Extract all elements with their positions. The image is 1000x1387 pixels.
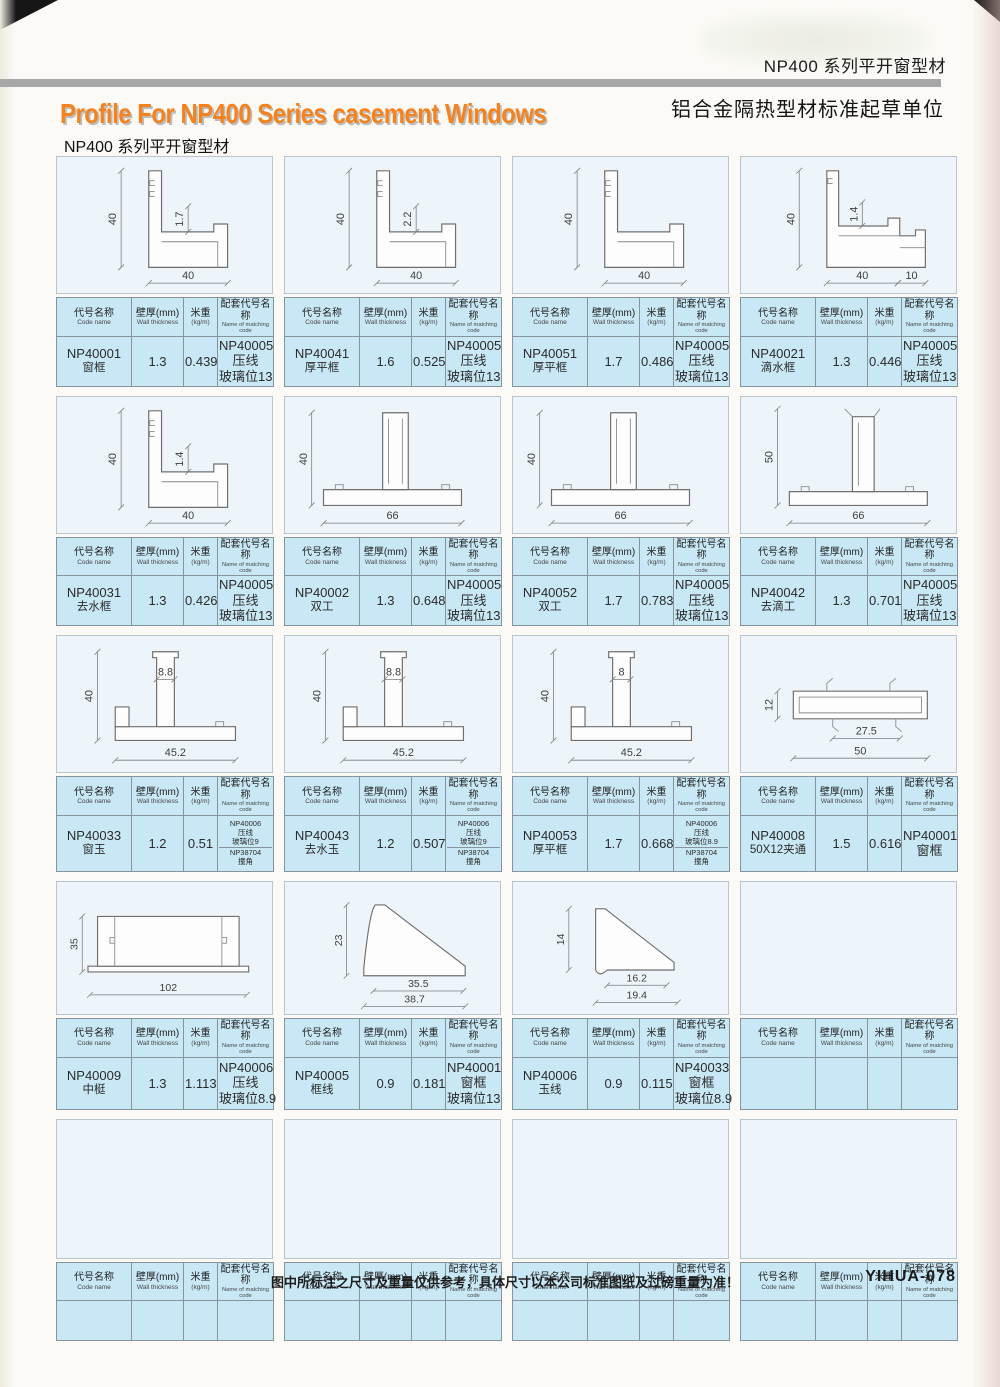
weight-cell: 0.701	[868, 576, 902, 626]
profile-drawing-empty	[740, 881, 957, 1015]
profile-cell: 1416.219.4 代号名称Code name 壁厚(mm)Wall thic…	[512, 881, 729, 1110]
col-header-weight: 米重(kg/m)	[640, 1018, 674, 1057]
svg-text:8.8: 8.8	[386, 666, 401, 678]
profile-drawing-empty	[284, 1119, 501, 1259]
col-header-wall-thickness: 壁厚(mm)Wall thickness	[360, 777, 412, 816]
col-header-code: 代号名称Code name	[285, 1018, 360, 1057]
profile-cross-section-NP40052: 4066	[513, 397, 728, 533]
weight-cell: 0.446	[868, 336, 902, 386]
col-header-code: 代号名称Code name	[57, 777, 132, 816]
grid-row: 40401.7 代号名称Code name 壁厚(mm)Wall thickne…	[56, 156, 961, 387]
matching-code-group: NP40005压线玻璃位13	[675, 338, 728, 385]
profile-spec-table: 代号名称Code name 壁厚(mm)Wall thickness 米重(kg…	[512, 297, 730, 387]
matching-code-cell: NP40005压线玻璃位13	[218, 336, 274, 386]
profile-spec-table: 代号名称Code name 壁厚(mm)Wall thickness 米重(kg…	[512, 1018, 730, 1110]
svg-text:40: 40	[638, 270, 650, 282]
table-header-row: 代号名称Code name 壁厚(mm)Wall thickness 米重(kg…	[741, 1018, 958, 1057]
col-header-weight: 米重(kg/m)	[868, 298, 902, 337]
code-cell: NP40053厚平框	[513, 815, 588, 871]
matching-code-group: NP40005压线玻璃位13	[903, 338, 956, 385]
matching-code-cell	[902, 1301, 958, 1341]
profile-cell: 40401.4 代号名称Code name 壁厚(mm)Wall thickne…	[56, 396, 273, 627]
profile-cross-section-NP40021: 401.44010	[741, 157, 956, 293]
profile-cell: 代号名称Code name 壁厚(mm)Wall thickness 米重(kg…	[740, 881, 957, 1110]
col-header-weight: 米重(kg/m)	[412, 537, 446, 576]
col-header-matching-code: 配套代号名称Name of matching code	[218, 777, 274, 816]
svg-text:14: 14	[555, 933, 567, 945]
table-data-row: NP40041厚平框 1.6 0.525 NP40005压线玻璃位13	[285, 336, 502, 386]
svg-text:40: 40	[335, 213, 347, 225]
page-title-en: Profile For NP400 Series casement Window…	[60, 98, 546, 130]
profile-cell: 408.845.2 代号名称Code name 壁厚(mm)Wall thick…	[284, 635, 501, 872]
table-data-row: NP40001窗框 1.3 0.439 NP40005压线玻璃位13	[57, 336, 274, 386]
matching-code-group: NP40005压线玻璃位13	[675, 577, 728, 624]
col-header-code: 代号名称Code name	[741, 777, 816, 816]
profile-spec-table: 代号名称Code name 壁厚(mm)Wall thickness 米重(kg…	[740, 537, 958, 627]
profile-drawing-NP40008: 1227.550	[740, 635, 957, 773]
col-header-wall-thickness: 壁厚(mm)Wall thickness	[360, 1018, 412, 1057]
weight-cell: 1.113	[184, 1057, 218, 1109]
wall-thickness-cell	[360, 1301, 412, 1341]
weight-cell	[640, 1301, 674, 1341]
svg-text:19.4: 19.4	[627, 990, 648, 1002]
wall-thickness-cell: 1.5	[816, 815, 868, 871]
svg-text:50: 50	[764, 451, 776, 463]
table-data-row: NP40002双工 1.3 0.648 NP40005压线玻璃位13	[285, 576, 502, 626]
col-header-code: 代号名称Code name	[741, 298, 816, 337]
wall-thickness-cell: 1.6	[360, 336, 412, 386]
col-header-code: 代号名称Code name	[285, 298, 360, 337]
svg-text:50: 50	[854, 745, 866, 757]
code-cell: NP40041厚平框	[285, 336, 360, 386]
matching-code-group: NP40005压线玻璃位13	[219, 577, 272, 624]
table-data-row: NP40006玉线 0.9 0.115 NP40033窗框玻璃位8.9	[513, 1057, 730, 1109]
svg-text:40: 40	[182, 510, 194, 522]
wall-thickness-cell: 1.3	[132, 576, 184, 626]
svg-text:40: 40	[526, 453, 538, 465]
svg-text:1.4: 1.4	[174, 451, 186, 466]
catalog-page: NP400 系列平开窗型材 铝合金隔热型材标准起草单位 Profile For …	[0, 0, 1000, 1387]
table-data-row: NP40005框线 0.9 0.181 NP40001窗框玻璃位13	[285, 1057, 502, 1109]
svg-text:45.2: 45.2	[165, 747, 186, 759]
matching-code-cell: NP40005压线玻璃位13	[674, 576, 730, 626]
col-header-weight: 米重(kg/m)	[640, 777, 674, 816]
matching-code-cell: NP40001窗框	[902, 815, 958, 871]
table-data-row	[741, 1057, 958, 1109]
col-header-weight: 米重(kg/m)	[868, 1018, 902, 1057]
profile-cross-section-NP40033: 408.845.2	[57, 636, 272, 772]
profile-cell: 5066 代号名称Code name 壁厚(mm)Wall thickness …	[740, 396, 957, 627]
col-header-weight: 米重(kg/m)	[640, 298, 674, 337]
table-header-row: 代号名称Code name 壁厚(mm)Wall thickness 米重(kg…	[285, 777, 502, 816]
col-header-weight: 米重(kg/m)	[640, 537, 674, 576]
col-header-code: 代号名称Code name	[285, 777, 360, 816]
profile-spec-table: 代号名称Code name 壁厚(mm)Wall thickness 米重(kg…	[56, 297, 274, 387]
profile-cell: 代号名称Code name 壁厚(mm)Wall thickness 米重(kg…	[284, 1119, 501, 1342]
col-header-code: 代号名称Code name	[57, 298, 132, 337]
matching-code-group: NP38704撞角	[219, 847, 272, 866]
profile-spec-table: 代号名称Code name 壁厚(mm)Wall thickness 米重(kg…	[284, 1018, 502, 1110]
profile-cell: 代号名称Code name 壁厚(mm)Wall thickness 米重(kg…	[512, 1119, 729, 1342]
col-header-weight: 米重(kg/m)	[868, 777, 902, 816]
table-header-row: 代号名称Code name 壁厚(mm)Wall thickness 米重(kg…	[285, 298, 502, 337]
profile-cell: 4040 代号名称Code name 壁厚(mm)Wall thickness …	[512, 156, 729, 387]
table-data-row: NP40043去水玉 1.2 0.507 NP40006压线玻璃位9NP3870…	[285, 815, 502, 871]
svg-text:10: 10	[906, 270, 918, 282]
col-header-wall-thickness: 壁厚(mm)Wall thickness	[816, 298, 868, 337]
wall-thickness-cell	[588, 1301, 640, 1341]
code-cell	[741, 1057, 816, 1109]
profile-drawing-NP40031: 40401.4	[56, 396, 273, 534]
col-header-matching-code: 配套代号名称Name of matching code	[218, 298, 274, 337]
svg-text:45.2: 45.2	[393, 747, 414, 759]
profile-spec-table: 代号名称Code name 壁厚(mm)Wall thickness 米重(kg…	[284, 776, 502, 872]
col-header-matching-code: 配套代号名称Name of matching code	[218, 1018, 274, 1057]
matching-code-cell: NP40033窗框玻璃位8.9	[674, 1057, 730, 1109]
table-header-row: 代号名称Code name 壁厚(mm)Wall thickness 米重(kg…	[285, 537, 502, 576]
weight-cell: 0.616	[868, 815, 902, 871]
wall-thickness-cell	[816, 1301, 868, 1341]
svg-text:45.2: 45.2	[621, 747, 642, 759]
code-cell: NP40031去水框	[57, 576, 132, 626]
matching-code-cell: NP40006压线玻璃位9NP38704撞角	[218, 815, 274, 871]
col-header-weight: 米重(kg/m)	[184, 1018, 218, 1057]
profile-cross-section-NP40053: 40845.2	[513, 636, 728, 772]
profile-drawing-NP40021: 401.44010	[740, 156, 957, 294]
weight-cell: 0.668	[640, 815, 674, 871]
col-header-wall-thickness: 壁厚(mm)Wall thickness	[816, 537, 868, 576]
profile-cross-section-NP40043: 408.845.2	[285, 636, 500, 772]
matching-code-group: NP40006压线玻璃位9	[447, 820, 500, 846]
col-header-matching-code: 配套代号名称Name of matching code	[446, 537, 502, 576]
profile-cell: 代号名称Code name 壁厚(mm)Wall thickness 米重(kg…	[56, 1119, 273, 1342]
profile-cross-section-NP40041: 40402.2	[285, 157, 500, 293]
table-data-row: NP40009中梃 1.3 1.113 NP40006压线玻璃位8.9	[57, 1057, 274, 1109]
table-header-row: 代号名称Code name 壁厚(mm)Wall thickness 米重(kg…	[513, 777, 730, 816]
wall-thickness-cell: 1.2	[132, 815, 184, 871]
matching-code-group: NP40033窗框玻璃位8.9	[675, 1060, 728, 1107]
profile-spec-table: 代号名称Code name 壁厚(mm)Wall thickness 米重(kg…	[512, 776, 730, 872]
col-header-matching-code: 配套代号名称Name of matching code	[674, 777, 730, 816]
wall-thickness-cell: 0.9	[588, 1057, 640, 1109]
profile-spec-table: 代号名称Code name 壁厚(mm)Wall thickness 米重(kg…	[512, 537, 730, 627]
col-header-matching-code: 配套代号名称Name of matching code	[902, 1018, 958, 1057]
profile-drawing-empty	[740, 1119, 957, 1259]
wall-thickness-cell: 1.7	[588, 815, 640, 871]
weight-cell: 0.783	[640, 576, 674, 626]
col-header-wall-thickness: 壁厚(mm)Wall thickness	[816, 1018, 868, 1057]
col-header-wall-thickness: 壁厚(mm)Wall thickness	[588, 777, 640, 816]
svg-text:40: 40	[785, 213, 797, 225]
weight-cell: 0.507	[412, 815, 446, 871]
code-cell: NP40005框线	[285, 1057, 360, 1109]
code-cell: NP40006玉线	[513, 1057, 588, 1109]
wall-thickness-cell: 1.3	[816, 576, 868, 626]
grid-row: 35102 代号名称Code name 壁厚(mm)Wall thickness…	[56, 881, 961, 1110]
col-header-weight: 米重(kg/m)	[184, 777, 218, 816]
table-header-row: 代号名称Code name 壁厚(mm)Wall thickness 米重(kg…	[513, 537, 730, 576]
col-header-wall-thickness: 壁厚(mm)Wall thickness	[132, 537, 184, 576]
weight-cell: 0.115	[640, 1057, 674, 1109]
code-cell	[741, 1301, 816, 1341]
profile-drawing-NP40006: 1416.219.4	[512, 881, 729, 1015]
profile-drawing-empty	[56, 1119, 273, 1259]
profile-spec-table: 代号名称Code name 壁厚(mm)Wall thickness 米重(kg…	[56, 537, 274, 627]
svg-text:16.2: 16.2	[627, 972, 648, 984]
profile-drawing-NP40005: 2335.538.7	[284, 881, 501, 1015]
matching-code-cell: NP40005压线玻璃位13	[446, 336, 502, 386]
table-header-row: 代号名称Code name 壁厚(mm)Wall thickness 米重(kg…	[741, 537, 958, 576]
profile-cross-section-NP40005: 2335.538.7	[285, 882, 500, 1014]
wall-thickness-cell	[816, 1057, 868, 1109]
matching-code-cell: NP40001窗框玻璃位13	[446, 1057, 502, 1109]
matching-code-cell	[674, 1301, 730, 1341]
table-data-row	[741, 1301, 958, 1341]
matching-code-group: NP40005压线玻璃位13	[219, 338, 272, 385]
col-header-weight: 米重(kg/m)	[412, 298, 446, 337]
weight-cell: 0.439	[184, 336, 218, 386]
svg-text:1.7: 1.7	[174, 212, 186, 227]
table-data-row: NP40042去滴工 1.3 0.701 NP40005压线玻璃位13	[741, 576, 958, 626]
col-header-wall-thickness: 壁厚(mm)Wall thickness	[132, 1018, 184, 1057]
table-header-row: 代号名称Code name 壁厚(mm)Wall thickness 米重(kg…	[57, 777, 274, 816]
col-header-wall-thickness: 壁厚(mm)Wall thickness	[132, 298, 184, 337]
col-header-wall-thickness: 壁厚(mm)Wall thickness	[816, 777, 868, 816]
profile-cell: 40401.7 代号名称Code name 壁厚(mm)Wall thickne…	[56, 156, 273, 387]
svg-text:40: 40	[540, 690, 552, 702]
col-header-weight: 米重(kg/m)	[184, 537, 218, 576]
col-header-weight: 米重(kg/m)	[412, 777, 446, 816]
code-cell: NP40001窗框	[57, 336, 132, 386]
matching-code-cell: NP40005压线玻璃位13	[902, 576, 958, 626]
col-header-code: 代号名称Code name	[285, 537, 360, 576]
scan-edge-left	[0, 0, 16, 1387]
matching-code-group: NP38704撞角	[447, 847, 500, 866]
matching-code-group: NP40006压线玻璃位8.9	[675, 820, 728, 846]
svg-text:12: 12	[764, 699, 776, 711]
svg-text:102: 102	[160, 982, 178, 994]
profile-drawing-NP40002: 4066	[284, 396, 501, 534]
code-cell: NP40051厚平框	[513, 336, 588, 386]
matching-code-group: NP40006压线玻璃位8.9	[219, 1060, 272, 1107]
grid-row: 40401.4 代号名称Code name 壁厚(mm)Wall thickne…	[56, 396, 961, 627]
profile-cross-section-NP40051: 4040	[513, 157, 728, 293]
weight-cell	[412, 1301, 446, 1341]
svg-text:40: 40	[298, 453, 310, 465]
code-cell	[513, 1301, 588, 1341]
table-header-row: 代号名称Code name 壁厚(mm)Wall thickness 米重(kg…	[741, 298, 958, 337]
col-header-matching-code: 配套代号名称Name of matching code	[446, 1018, 502, 1057]
code-cell: NP40052双工	[513, 576, 588, 626]
profile-grid: 40401.7 代号名称Code name 壁厚(mm)Wall thickne…	[56, 156, 961, 1341]
svg-text:40: 40	[410, 270, 422, 282]
profile-cell: 代号名称Code name 壁厚(mm)Wall thickness 米重(kg…	[740, 1119, 957, 1342]
table-data-row	[285, 1301, 502, 1341]
profile-spec-table: 代号名称Code name 壁厚(mm)Wall thickness 米重(kg…	[284, 297, 502, 387]
matching-code-cell: NP40005压线玻璃位13	[218, 576, 274, 626]
profile-cell: 2335.538.7 代号名称Code name 壁厚(mm)Wall thic…	[284, 881, 501, 1110]
col-header-code: 代号名称Code name	[513, 777, 588, 816]
wall-thickness-cell	[132, 1301, 184, 1341]
table-header-row: 代号名称Code name 壁厚(mm)Wall thickness 米重(kg…	[741, 777, 958, 816]
table-data-row: NP40033窗玉 1.2 0.51 NP40006压线玻璃位9NP38704撞…	[57, 815, 274, 871]
col-header-code: 代号名称Code name	[57, 537, 132, 576]
matching-code-group: NP40001窗框	[903, 828, 956, 859]
col-header-weight: 米重(kg/m)	[184, 298, 218, 337]
col-header-wall-thickness: 壁厚(mm)Wall thickness	[588, 537, 640, 576]
col-header-matching-code: 配套代号名称Name of matching code	[674, 298, 730, 337]
table-data-row	[513, 1301, 730, 1341]
profile-cross-section-NP40009: 35102	[57, 882, 272, 1014]
matching-code-group: NP38704撞角	[675, 847, 728, 866]
matching-code-cell: NP40006压线玻璃位8.9NP38704撞角	[674, 815, 730, 871]
profile-cell: 40402.2 代号名称Code name 壁厚(mm)Wall thickne…	[284, 156, 501, 387]
wall-thickness-cell: 1.7	[588, 576, 640, 626]
weight-cell: 0.648	[412, 576, 446, 626]
col-header-code: 代号名称Code name	[741, 1018, 816, 1057]
svg-text:35: 35	[68, 938, 80, 950]
profile-drawing-NP40042: 5066	[740, 396, 957, 534]
table-data-row	[57, 1301, 274, 1341]
svg-text:2.2: 2.2	[402, 212, 414, 227]
grid-row: 代号名称Code name 壁厚(mm)Wall thickness 米重(kg…	[56, 1119, 961, 1342]
svg-text:8: 8	[618, 666, 624, 678]
weight-cell: 0.486	[640, 336, 674, 386]
matching-code-group: NP40001窗框玻璃位13	[447, 1060, 500, 1107]
series-header-label: NP400 系列平开窗型材	[764, 52, 946, 77]
matching-code-group: NP40005压线玻璃位13	[903, 577, 956, 624]
table-header-row: 代号名称Code name 壁厚(mm)Wall thickness 米重(kg…	[513, 1018, 730, 1057]
col-header-code: 代号名称Code name	[741, 537, 816, 576]
svg-text:40: 40	[563, 213, 575, 225]
col-header-wall-thickness: 壁厚(mm)Wall thickness	[360, 298, 412, 337]
col-header-wall-thickness: 壁厚(mm)Wall thickness	[132, 777, 184, 816]
profile-drawing-NP40041: 40402.2	[284, 156, 501, 294]
wall-thickness-cell: 1.2	[360, 815, 412, 871]
wall-thickness-cell: 1.3	[132, 1057, 184, 1109]
grid-row: 408.845.2 代号名称Code name 壁厚(mm)Wall thick…	[56, 635, 961, 872]
table-data-row: NP40053厚平框 1.7 0.668 NP40006压线玻璃位8.9NP38…	[513, 815, 730, 871]
wall-thickness-cell: 0.9	[360, 1057, 412, 1109]
profile-cell: 4066 代号名称Code name 壁厚(mm)Wall thickness …	[512, 396, 729, 627]
matching-code-cell: NP40006压线玻璃位8.9	[218, 1057, 274, 1109]
col-header-weight: 米重(kg/m)	[868, 537, 902, 576]
code-cell: NP40009中梃	[57, 1057, 132, 1109]
table-header-row: 代号名称Code name 壁厚(mm)Wall thickness 米重(kg…	[513, 298, 730, 337]
wall-thickness-cell: 1.3	[816, 336, 868, 386]
svg-text:35.5: 35.5	[408, 978, 429, 990]
col-header-matching-code: 配套代号名称Name of matching code	[902, 537, 958, 576]
svg-text:40: 40	[182, 270, 194, 282]
matching-code-cell	[218, 1301, 274, 1341]
col-header-wall-thickness: 壁厚(mm)Wall thickness	[588, 1018, 640, 1057]
org-header-label: 铝合金隔热型材标准起草单位	[671, 93, 944, 122]
weight-cell	[868, 1301, 902, 1341]
matching-code-cell: NP40005压线玻璃位13	[446, 576, 502, 626]
code-cell: NP40033窗玉	[57, 815, 132, 871]
profile-cross-section-NP40006: 1416.219.4	[513, 882, 728, 1014]
page-code: YIHUA-078	[865, 1268, 956, 1286]
header-divider-bar	[0, 79, 941, 87]
svg-text:1.4: 1.4	[848, 207, 860, 222]
weight-cell: 0.525	[412, 336, 446, 386]
scan-edge-right	[972, 0, 1000, 1387]
page-title-cn: NP400 系列平开窗型材	[64, 133, 229, 157]
matching-code-cell	[902, 1057, 958, 1109]
table-header-row: 代号名称Code name 壁厚(mm)Wall thickness 米重(kg…	[57, 298, 274, 337]
matching-code-group: NP40005压线玻璃位13	[447, 577, 500, 624]
profile-cell: 1227.550 代号名称Code name 壁厚(mm)Wall thickn…	[740, 635, 957, 872]
svg-text:40: 40	[856, 270, 868, 282]
profile-cell: 35102 代号名称Code name 壁厚(mm)Wall thickness…	[56, 881, 273, 1110]
profile-spec-table: 代号名称Code name 壁厚(mm)Wall thickness 米重(kg…	[284, 537, 502, 627]
table-header-row: 代号名称Code name 壁厚(mm)Wall thickness 米重(kg…	[57, 537, 274, 576]
profile-cell: 4066 代号名称Code name 壁厚(mm)Wall thickness …	[284, 396, 501, 627]
svg-text:40: 40	[107, 453, 119, 465]
table-data-row: NP40051厚平框 1.7 0.486 NP40005压线玻璃位13	[513, 336, 730, 386]
svg-text:66: 66	[614, 510, 626, 522]
profile-spec-table: 代号名称Code name 壁厚(mm)Wall thickness 米重(kg…	[740, 1018, 958, 1110]
col-header-code: 代号名称Code name	[513, 537, 588, 576]
profile-cross-section-NP40002: 4066	[285, 397, 500, 533]
table-header-row: 代号名称Code name 壁厚(mm)Wall thickness 米重(kg…	[285, 1018, 502, 1057]
matching-code-cell: NP40006压线玻璃位9NP38704撞角	[446, 815, 502, 871]
svg-text:38.7: 38.7	[404, 993, 425, 1005]
matching-code-cell	[446, 1301, 502, 1341]
col-header-code: 代号名称Code name	[513, 298, 588, 337]
matching-code-group: NP40006压线玻璃位9	[219, 820, 272, 846]
col-header-matching-code: 配套代号名称Name of matching code	[674, 1018, 730, 1057]
profile-spec-table: 代号名称Code name 壁厚(mm)Wall thickness 米重(kg…	[740, 297, 958, 387]
svg-text:40: 40	[84, 690, 96, 702]
svg-text:27.5: 27.5	[856, 726, 877, 738]
svg-text:66: 66	[386, 510, 398, 522]
wall-thickness-cell: 1.3	[360, 576, 412, 626]
profile-spec-table: 代号名称Code name 壁厚(mm)Wall thickness 米重(kg…	[740, 776, 958, 872]
col-header-wall-thickness: 壁厚(mm)Wall thickness	[360, 537, 412, 576]
profile-cell: 408.845.2 代号名称Code name 壁厚(mm)Wall thick…	[56, 635, 273, 872]
weight-cell: 0.426	[184, 576, 218, 626]
profile-cell: 40845.2 代号名称Code name 壁厚(mm)Wall thickne…	[512, 635, 729, 872]
profile-cross-section-NP40008: 1227.550	[741, 636, 956, 772]
profile-spec-table: 代号名称Code name 壁厚(mm)Wall thickness 米重(kg…	[56, 776, 274, 872]
code-cell	[285, 1301, 360, 1341]
profile-cell: 401.44010 代号名称Code name 壁厚(mm)Wall thick…	[740, 156, 957, 387]
svg-text:23: 23	[333, 934, 345, 946]
wall-thickness-cell: 1.7	[588, 336, 640, 386]
col-header-code: 代号名称Code name	[57, 1018, 132, 1057]
code-cell: NP40021滴水框	[741, 336, 816, 386]
profile-drawing-NP40001: 40401.7	[56, 156, 273, 294]
col-header-matching-code: 配套代号名称Name of matching code	[902, 777, 958, 816]
profile-spec-table: 代号名称Code name 壁厚(mm)Wall thickness 米重(kg…	[56, 1018, 274, 1110]
svg-text:40: 40	[107, 213, 119, 225]
col-header-matching-code: 配套代号名称Name of matching code	[674, 537, 730, 576]
col-header-code: 代号名称Code name	[513, 1018, 588, 1057]
matching-code-cell: NP40005压线玻璃位13	[902, 336, 958, 386]
table-data-row: NP40021滴水框 1.3 0.446 NP40005压线玻璃位13	[741, 336, 958, 386]
matching-code-cell: NP40005压线玻璃位13	[674, 336, 730, 386]
table-data-row: NP40031去水框 1.3 0.426 NP40005压线玻璃位13	[57, 576, 274, 626]
col-header-wall-thickness: 壁厚(mm)Wall thickness	[588, 298, 640, 337]
weight-cell: 0.51	[184, 815, 218, 871]
profile-cross-section-NP40031: 40401.4	[57, 397, 272, 533]
weight-cell	[184, 1301, 218, 1341]
table-data-row: NP4000850X12夹通 1.5 0.616 NP40001窗框	[741, 815, 958, 871]
matching-code-group: NP40005压线玻璃位13	[447, 338, 500, 385]
profile-drawing-NP40053: 40845.2	[512, 635, 729, 773]
profile-drawing-empty	[512, 1119, 729, 1259]
